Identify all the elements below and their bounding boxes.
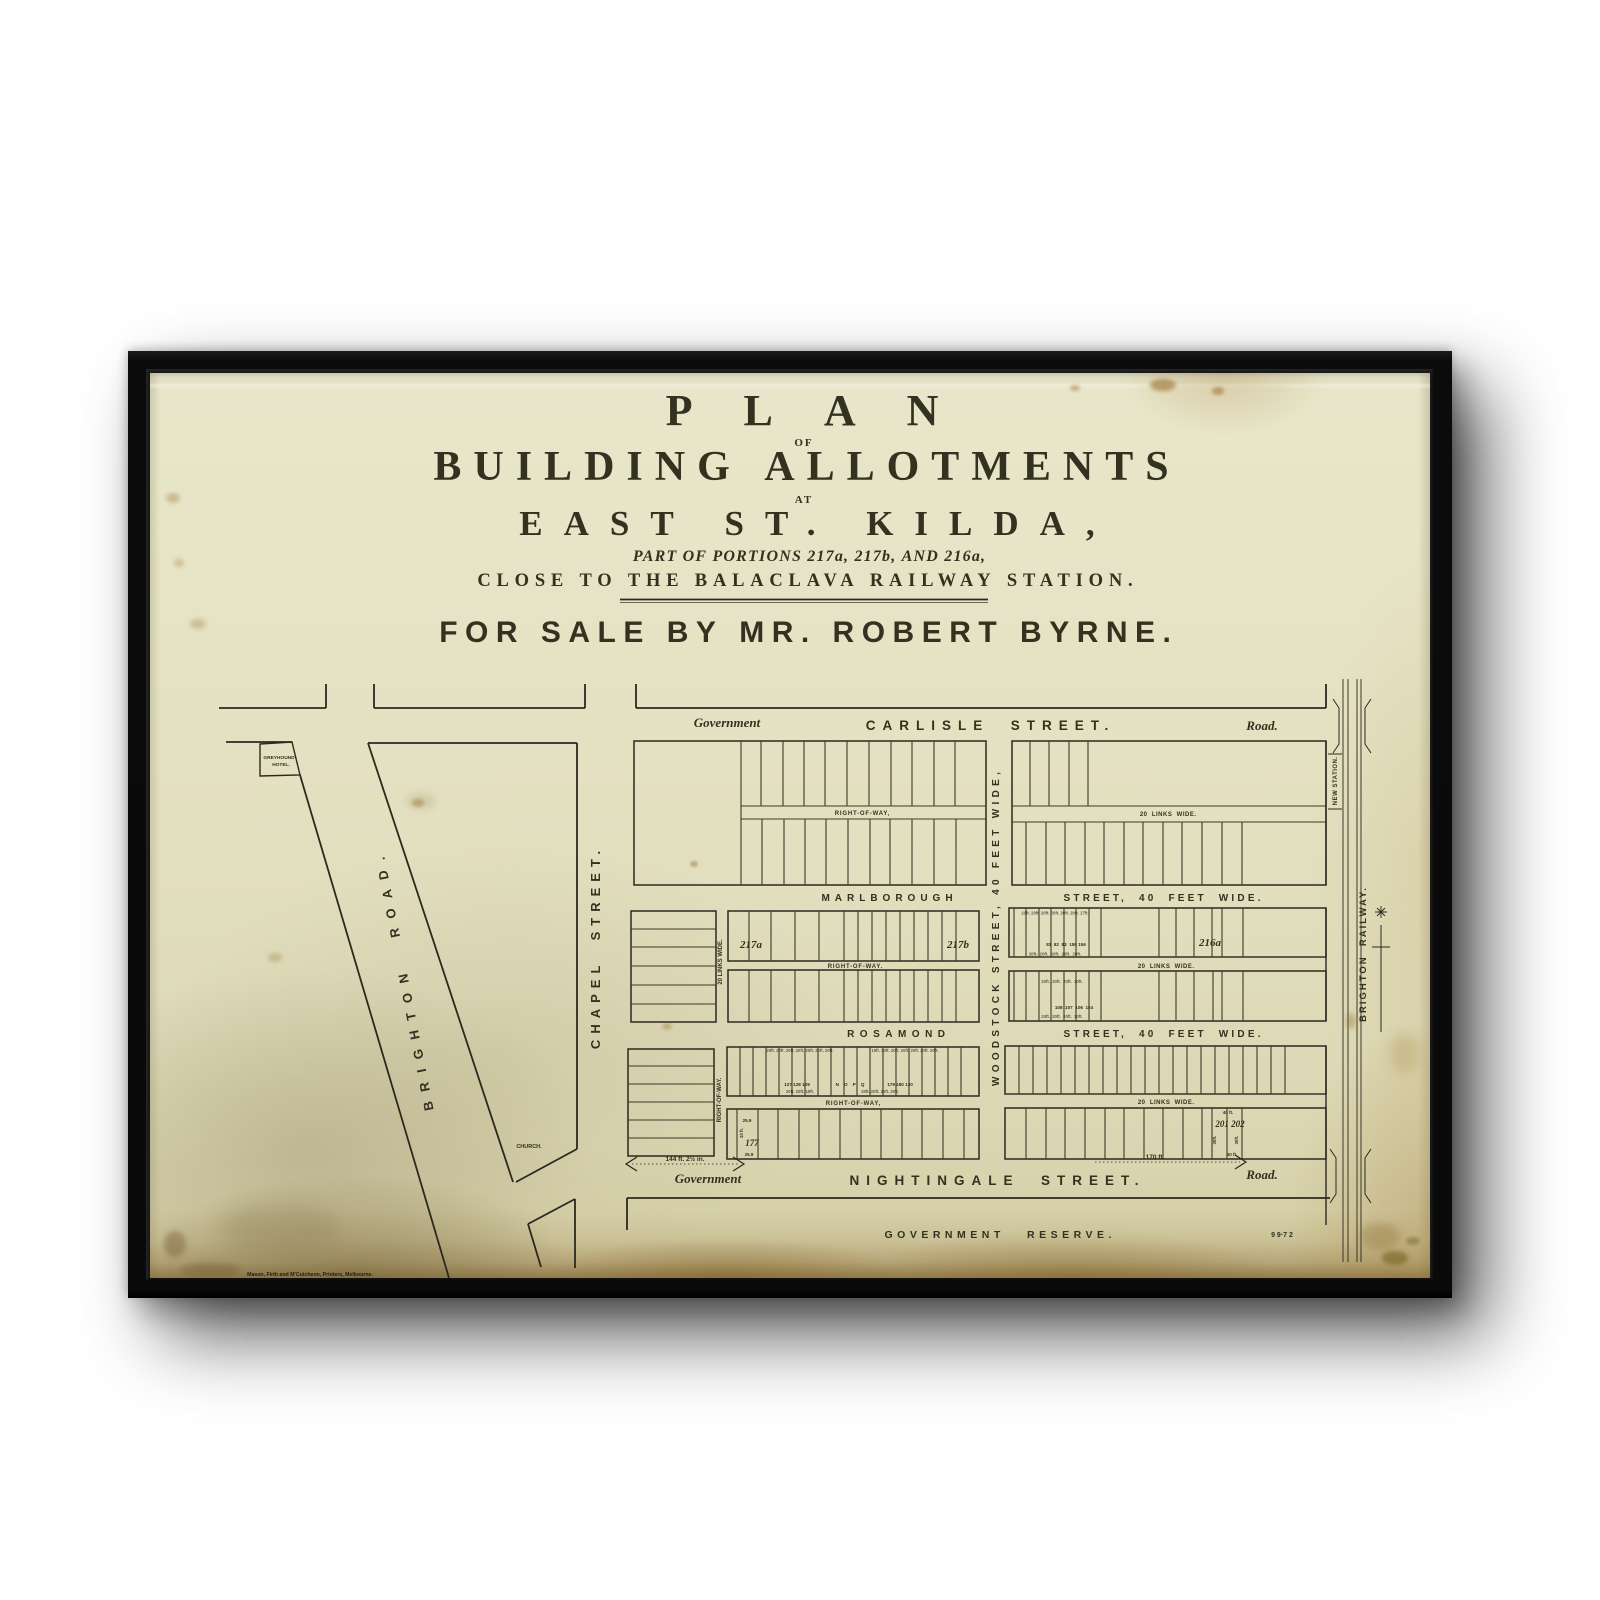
svg-text:9 9·7 2: 9 9·7 2 [1271,1232,1293,1239]
svg-text:CARLISLE STREET.: CARLISLE STREET. [866,718,1116,733]
svg-text:N O P Q: N O P Q [836,1082,865,1087]
svg-text:FOR SALE BY MR. ROBERT BYRNE.: FOR SALE BY MR. ROBERT BYRNE. [439,616,1178,649]
svg-text:HOTEL.: HOTEL. [272,762,290,768]
svg-text:STREET, 40 FEET WIDE.: STREET, 40 FEET WIDE. [1064,893,1264,904]
svg-text:20ft. 20ft. 20ft. 20ft. 20ft.: 20ft. 20ft. 20ft. 20ft. 20ft. 20ft. 17ft… [1021,911,1088,916]
svg-text:179 180 130: 179 180 130 [887,1082,913,1087]
svg-text:19ft. 20ft. 20ft. 20ft. 20ft.: 19ft. 20ft. 20ft. 20ft. 20ft. 20ft. 20ft… [871,1048,938,1053]
svg-text:20ft. 20ft. 20ft. 20ft.: 20ft. 20ft. 20ft. 20ft. [1041,979,1082,984]
svg-text:RIGHT-OF-WAY,: RIGHT-OF-WAY, [826,1101,881,1107]
svg-text:CHAPEL STREET.: CHAPEL STREET. [588,845,603,1049]
svg-text:NEW STATION.: NEW STATION. [1333,756,1339,805]
svg-text:20 LINKS WIDE.: 20 LINKS WIDE. [718,939,724,985]
svg-text:108 107 106 154: 108 107 106 154 [1055,1005,1094,1010]
svg-text:25.9: 25.9 [745,1152,754,1157]
svg-text:217b: 217b [946,939,970,951]
svg-text:ROSAMOND: ROSAMOND [847,1029,950,1040]
svg-text:30ft.: 30ft. [1212,1136,1217,1145]
svg-text:20ft. 20ft. 20ft. 20ft.: 20ft. 20ft. 20ft. 20ft. [1041,1014,1082,1019]
svg-text:20ft. 20ft. 20ft. 20ft. 20ft.: 20ft. 20ft. 20ft. 20ft. 20ft. 20ft. 20ft… [766,1048,833,1053]
svg-text:PART OF PORTIONS 217a, 217b, A: PART OF PORTIONS 217a, 217b, AND 216a, [632,548,986,565]
svg-text:19ft. 20ft. 20ft. 20ft.: 19ft. 20ft. 20ft. 20ft. [861,1089,899,1094]
svg-text:CLOSE TO THE BALACLAVA RAILWAY: CLOSE TO THE BALACLAVA RAILWAY STATION. [477,571,1138,591]
svg-text:GOVERNMENT RESERVE.: GOVERNMENT RESERVE. [884,1229,1115,1241]
svg-text:40 ft.: 40 ft. [1227,1152,1238,1157]
svg-text:WOODSTOCK STREET, 40 FEET WIDE: WOODSTOCK STREET, 40 FEET WIDE, [991,768,1002,1086]
svg-text:25.9: 25.9 [743,1118,752,1123]
svg-text:20 LINKS WIDE.: 20 LINKS WIDE. [1140,812,1197,818]
svg-text:20 ft.: 20 ft. [739,1128,744,1138]
svg-text:Government: Government [694,715,761,730]
svg-text:Government: Government [675,1171,742,1186]
svg-text:177: 177 [745,1138,759,1148]
svg-text:NIGHTINGALE STREET.: NIGHTINGALE STREET. [849,1173,1145,1188]
svg-text:CHURCH.: CHURCH. [516,1144,542,1150]
svg-text:30ft.: 30ft. [1234,1136,1239,1145]
svg-text:PLAN: PLAN [666,386,990,435]
svg-text:81 82 83 155 156: 81 82 83 155 156 [1046,942,1086,947]
svg-text:20 LINKS WIDE.: 20 LINKS WIDE. [1138,964,1195,970]
svg-text:Road.: Road. [1245,1167,1277,1182]
svg-text:BUILDING ALLOTMENTS: BUILDING ALLOTMENTS [433,444,1180,490]
svg-text:RIGHT-OF-WAY,: RIGHT-OF-WAY, [835,811,890,817]
svg-text:20ft. 20ft. 20ft. 20ft. 20: 20ft. 20ft. 20ft. 20ft. 20ft. [1029,952,1081,957]
svg-text:216a: 216a [1198,937,1222,949]
svg-text:20 LINKS WIDE.: 20 LINKS WIDE. [1138,1100,1195,1106]
svg-text:144 ft. 2½ in.: 144 ft. 2½ in. [665,1155,704,1163]
svg-text:RIGHT-OF-WAY.: RIGHT-OF-WAY. [717,1077,723,1122]
svg-text:EAST ST. KILDA,: EAST ST. KILDA, [519,504,1115,543]
svg-text:217a: 217a [739,939,763,951]
svg-text:Mason, Firth and M’Cutcheon, P: Mason, Firth and M’Cutcheon, Printers, M… [247,1272,373,1278]
svg-text:127 128 129: 127 128 129 [784,1082,810,1087]
svg-text:201 202: 201 202 [1214,1119,1245,1129]
svg-text:40 ft.: 40 ft. [1223,1110,1234,1115]
svg-text:GREYHOUND: GREYHOUND [263,755,295,761]
svg-text:BRIGHTON RAILWAY.: BRIGHTON RAILWAY. [1358,886,1369,1022]
svg-text:BRIGHTON ROAD.: BRIGHTON ROAD. [371,846,437,1112]
svg-text:STREET, 40 FEET WIDE.: STREET, 40 FEET WIDE. [1064,1029,1264,1040]
svg-text:170 ft.: 170 ft. [1146,1154,1165,1161]
svg-text:MARLBOROUGH: MARLBOROUGH [821,893,957,904]
svg-text:Road.: Road. [1245,718,1277,733]
svg-text:RIGHT-OF-WAY.: RIGHT-OF-WAY. [828,964,883,970]
svg-text:20ft. 20ft. 19ft.: 20ft. 20ft. 19ft. [786,1089,814,1094]
